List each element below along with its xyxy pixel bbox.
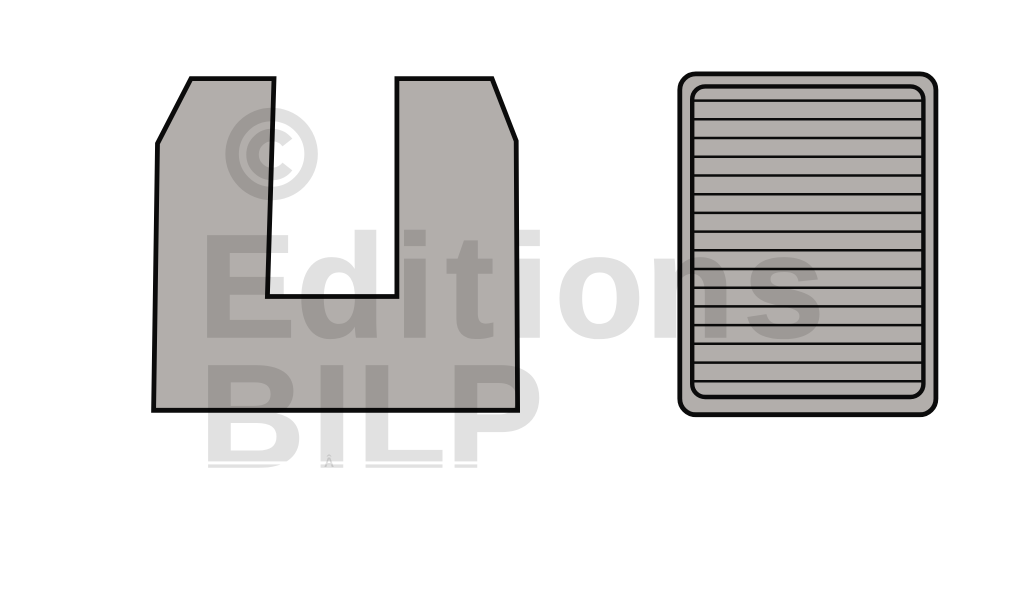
svg-text:s: s [743, 205, 825, 369]
svg-text:P: P [446, 335, 544, 499]
svg-text:Â: Â [324, 453, 334, 470]
svg-text:o: o [555, 205, 645, 369]
svg-text:n: n [645, 205, 735, 369]
svg-text:L: L [357, 335, 447, 499]
svg-text:I: I [312, 335, 353, 499]
svg-text:B: B [199, 335, 305, 499]
